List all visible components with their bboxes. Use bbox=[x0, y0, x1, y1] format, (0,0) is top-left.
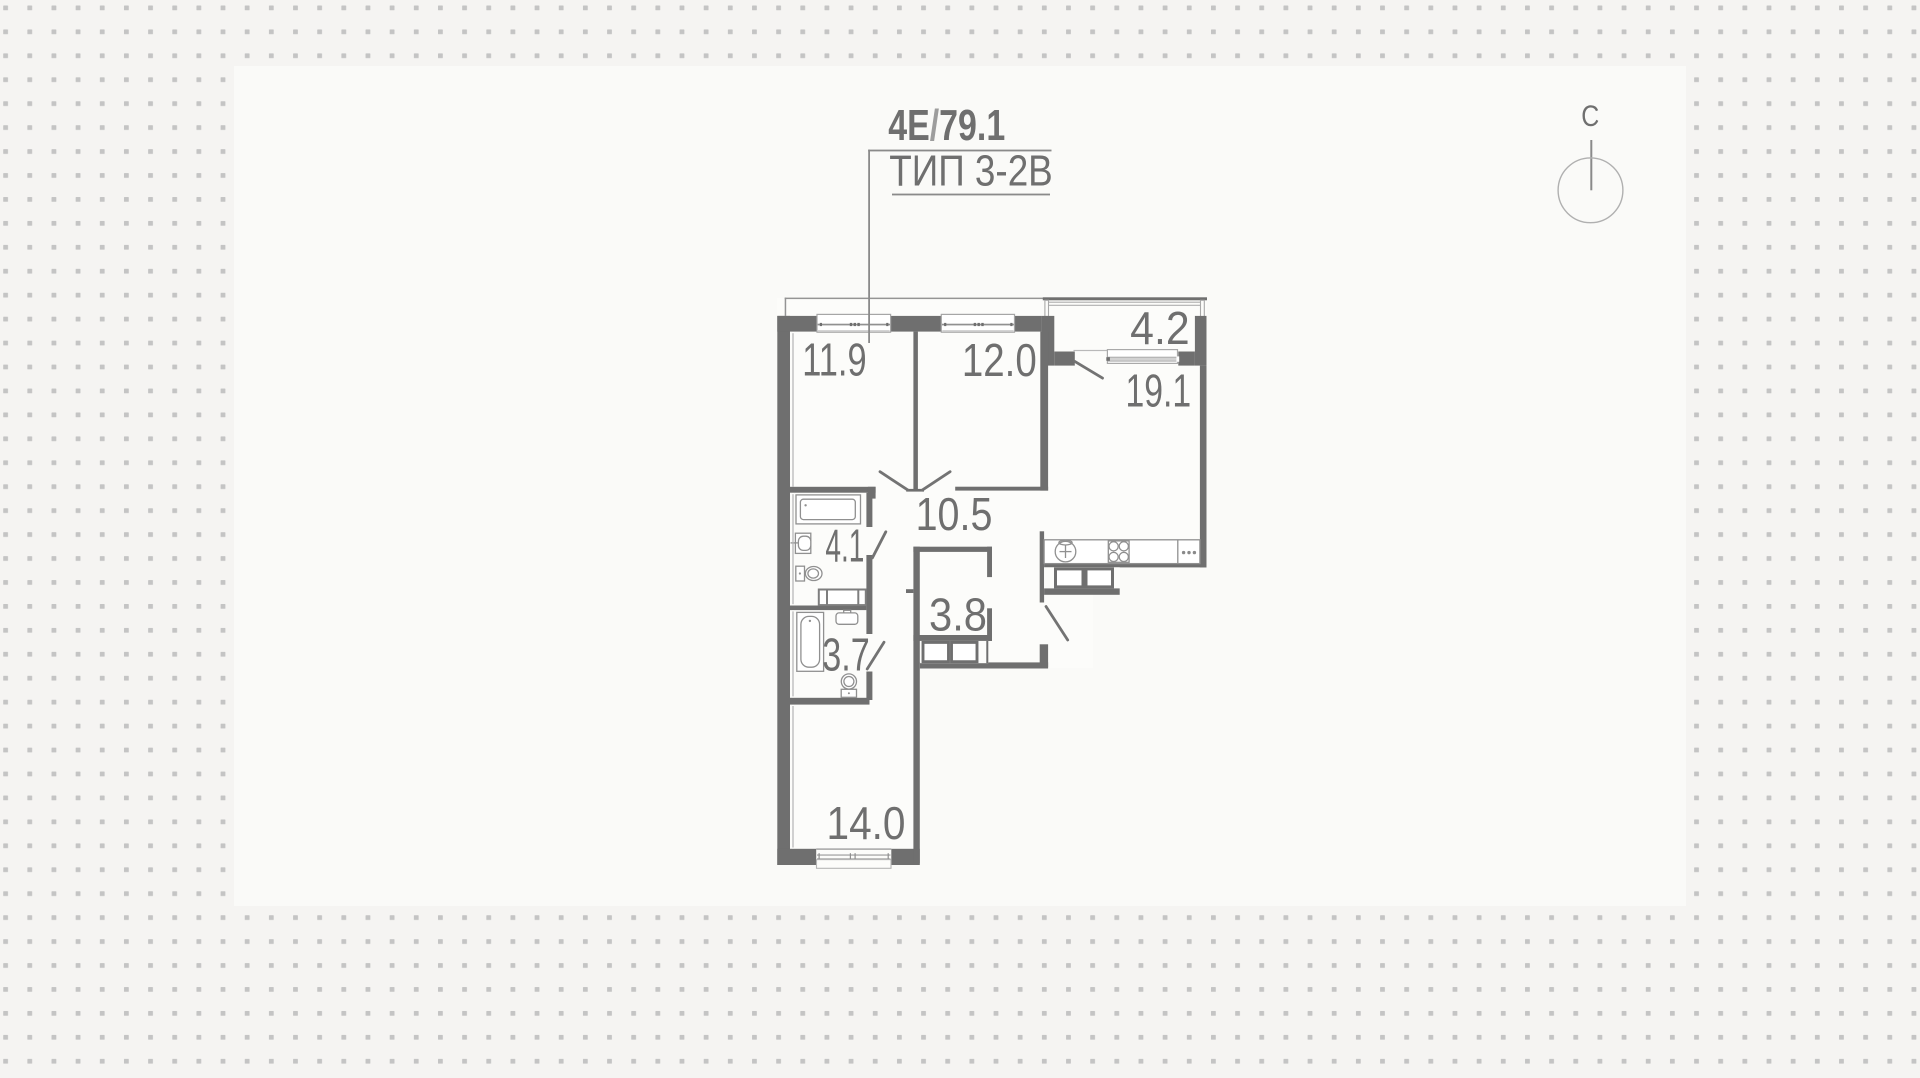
svg-text:12.0: 12.0 bbox=[962, 334, 1037, 386]
svg-text:4.2: 4.2 bbox=[1130, 302, 1190, 354]
svg-text:3.8: 3.8 bbox=[929, 589, 987, 641]
svg-text:4Е/79.1: 4Е/79.1 bbox=[888, 101, 1005, 150]
svg-text:19.1: 19.1 bbox=[1125, 365, 1191, 417]
svg-text:С: С bbox=[1581, 100, 1599, 133]
svg-text:4.1: 4.1 bbox=[825, 520, 864, 572]
svg-text:11.9: 11.9 bbox=[802, 334, 866, 386]
svg-text:10.5: 10.5 bbox=[916, 488, 993, 540]
svg-text:14.0: 14.0 bbox=[827, 797, 906, 849]
svg-text:ТИП 3-2В: ТИП 3-2В bbox=[889, 146, 1053, 195]
svg-text:3.7: 3.7 bbox=[822, 629, 870, 681]
